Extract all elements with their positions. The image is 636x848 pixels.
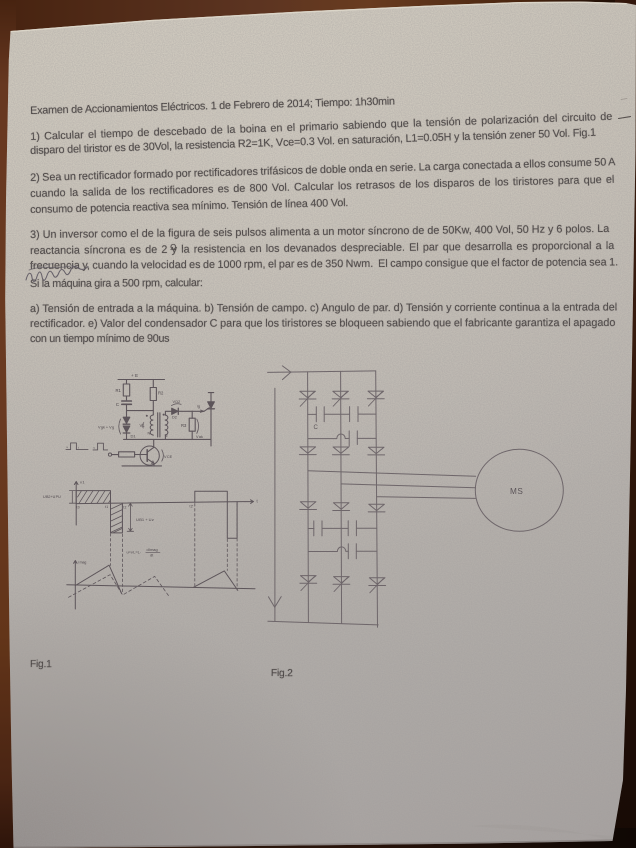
svg-text:V D2: V D2 xyxy=(173,400,181,404)
svg-text:t 1: t 1 xyxy=(105,505,108,509)
svg-text:v 1: v 1 xyxy=(80,480,85,485)
svg-text:V ak: V ak xyxy=(196,435,203,439)
svg-text:D2: D2 xyxy=(172,416,177,420)
svg-text:R3: R3 xyxy=(181,423,187,428)
svg-text:MS: MS xyxy=(510,487,523,496)
svg-text:t 2: t 2 xyxy=(123,506,126,510)
svg-text:R1: R1 xyxy=(116,388,122,393)
svg-text:dI mag: dI mag xyxy=(147,547,158,552)
svg-text:+ E: + E xyxy=(131,373,138,378)
svg-text:t 0: t 0 xyxy=(77,506,80,510)
svg-text:u=v L=L·: u=v L=L· xyxy=(127,550,142,555)
svg-text:D1: D1 xyxy=(131,434,137,439)
svg-text:i mag: i mag xyxy=(79,561,87,565)
svg-text:V CE: V CE xyxy=(164,455,173,459)
svg-text:t 2': t 2' xyxy=(190,505,194,509)
svg-text:U B1 + U z: U B1 + U z xyxy=(136,517,154,522)
svg-text:C: C xyxy=(314,425,319,431)
svg-text:R2: R2 xyxy=(158,391,164,396)
svg-text:V gk + V g: V gk + V g xyxy=(98,426,114,430)
svg-text:U B2+U PU: U B2+U PU xyxy=(43,495,61,499)
svg-text:N: N xyxy=(148,432,151,436)
svg-text:ig: ig xyxy=(197,405,200,409)
